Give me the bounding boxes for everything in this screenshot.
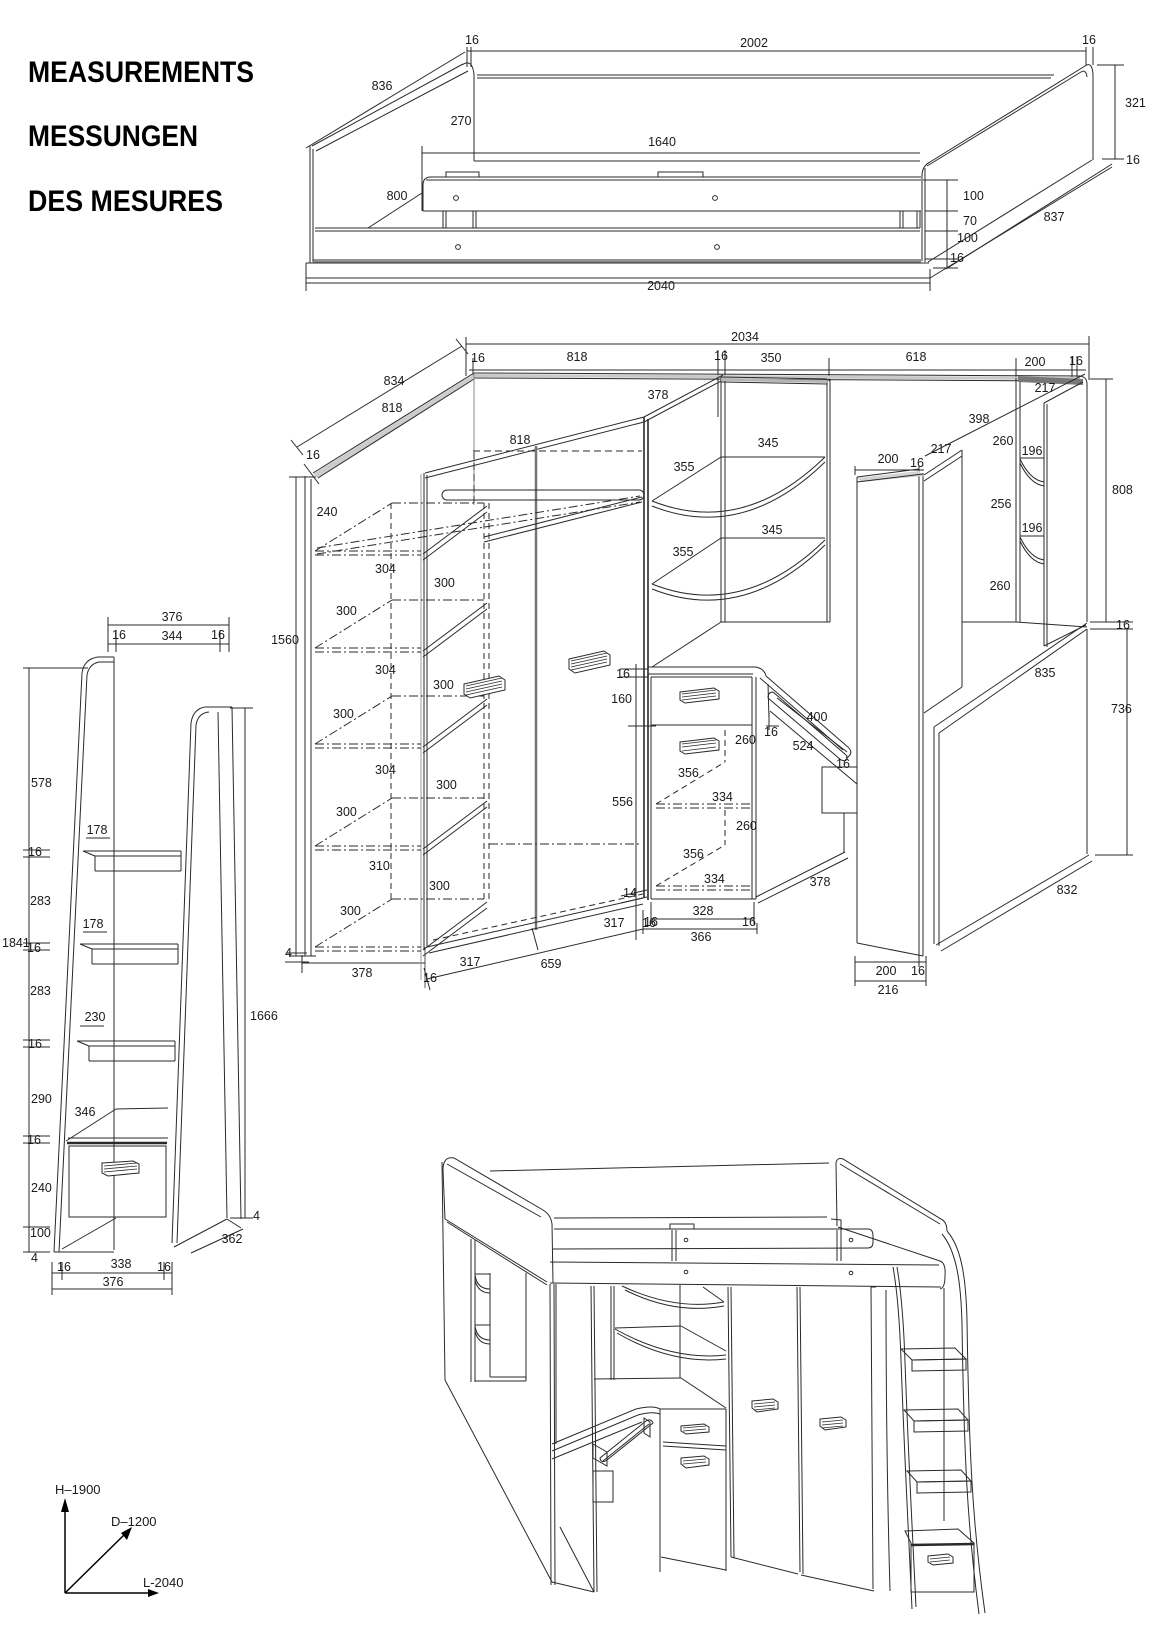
svg-text:2002: 2002 — [740, 36, 768, 50]
svg-text:16: 16 — [465, 33, 479, 47]
svg-text:378: 378 — [648, 388, 669, 402]
svg-text:304: 304 — [375, 763, 396, 777]
svg-text:304: 304 — [375, 663, 396, 677]
svg-text:317: 317 — [460, 955, 481, 969]
svg-text:217: 217 — [1035, 381, 1056, 395]
svg-text:MESSUNGEN: MESSUNGEN — [28, 120, 198, 153]
svg-text:260: 260 — [736, 819, 757, 833]
svg-text:D–1200: D–1200 — [111, 1514, 157, 1529]
svg-text:837: 837 — [1044, 210, 1065, 224]
svg-text:70: 70 — [963, 214, 977, 228]
svg-text:4: 4 — [31, 1251, 38, 1265]
svg-text:832: 832 — [1057, 883, 1078, 897]
svg-text:16: 16 — [1082, 33, 1096, 47]
svg-text:290: 290 — [31, 1092, 52, 1106]
svg-text:200: 200 — [1025, 355, 1046, 369]
svg-text:1666: 1666 — [250, 1009, 278, 1023]
svg-text:300: 300 — [429, 879, 450, 893]
svg-text:355: 355 — [673, 545, 694, 559]
svg-text:4: 4 — [253, 1209, 260, 1223]
svg-text:MEASUREMENTS: MEASUREMENTS — [28, 56, 254, 89]
svg-text:4: 4 — [285, 946, 292, 960]
svg-text:321: 321 — [1125, 96, 1146, 110]
svg-text:524: 524 — [793, 739, 814, 753]
svg-text:818: 818 — [567, 350, 588, 364]
svg-text:260: 260 — [990, 579, 1011, 593]
svg-text:200: 200 — [876, 964, 897, 978]
svg-text:334: 334 — [704, 872, 725, 886]
svg-text:300: 300 — [336, 805, 357, 819]
svg-text:16: 16 — [742, 915, 756, 929]
svg-text:304: 304 — [375, 562, 396, 576]
svg-text:300: 300 — [340, 904, 361, 918]
svg-text:618: 618 — [906, 350, 927, 364]
svg-text:16: 16 — [1116, 618, 1130, 632]
svg-text:260: 260 — [735, 733, 756, 747]
svg-text:376: 376 — [162, 610, 183, 624]
svg-text:1841: 1841 — [2, 936, 30, 950]
svg-text:16: 16 — [836, 757, 850, 771]
svg-text:355: 355 — [674, 460, 695, 474]
svg-text:200: 200 — [878, 452, 899, 466]
svg-text:300: 300 — [433, 678, 454, 692]
svg-text:16: 16 — [306, 448, 320, 462]
svg-text:659: 659 — [541, 957, 562, 971]
svg-text:344: 344 — [162, 629, 183, 643]
svg-text:398: 398 — [969, 412, 990, 426]
svg-text:334: 334 — [712, 790, 733, 804]
svg-text:300: 300 — [436, 778, 457, 792]
svg-text:100: 100 — [957, 231, 978, 245]
svg-text:16: 16 — [471, 351, 485, 365]
svg-text:578: 578 — [31, 776, 52, 790]
svg-text:366: 366 — [691, 930, 712, 944]
svg-text:16: 16 — [57, 1260, 71, 1274]
svg-text:310: 310 — [369, 859, 390, 873]
svg-text:DES MESURES: DES MESURES — [28, 185, 223, 218]
svg-text:378: 378 — [352, 966, 373, 980]
svg-text:160: 160 — [611, 692, 632, 706]
svg-text:376: 376 — [103, 1275, 124, 1289]
svg-text:328: 328 — [693, 904, 714, 918]
svg-text:835: 835 — [1035, 666, 1056, 680]
svg-text:1560: 1560 — [271, 633, 299, 647]
svg-text:240: 240 — [31, 1181, 52, 1195]
svg-text:818: 818 — [510, 433, 531, 447]
svg-text:16: 16 — [910, 456, 924, 470]
svg-text:338: 338 — [111, 1257, 132, 1271]
svg-text:556: 556 — [612, 795, 633, 809]
svg-text:345: 345 — [762, 523, 783, 537]
svg-text:16: 16 — [644, 915, 658, 929]
svg-text:300: 300 — [336, 604, 357, 618]
svg-text:283: 283 — [30, 894, 51, 908]
svg-text:16: 16 — [714, 349, 728, 363]
svg-text:16: 16 — [27, 1133, 41, 1147]
svg-text:356: 356 — [678, 766, 699, 780]
svg-text:16: 16 — [616, 667, 630, 681]
svg-text:400: 400 — [807, 710, 828, 724]
svg-text:H–1900: H–1900 — [55, 1482, 101, 1497]
svg-text:317: 317 — [604, 916, 625, 930]
svg-text:283: 283 — [30, 984, 51, 998]
svg-text:178: 178 — [87, 823, 108, 837]
svg-text:240: 240 — [317, 505, 338, 519]
svg-text:16: 16 — [28, 845, 42, 859]
svg-text:362: 362 — [222, 1232, 243, 1246]
svg-text:256: 256 — [991, 497, 1012, 511]
svg-text:1640: 1640 — [648, 135, 676, 149]
svg-text:16: 16 — [28, 1037, 42, 1051]
svg-text:2034: 2034 — [731, 330, 759, 344]
svg-text:16: 16 — [112, 628, 126, 642]
svg-text:L-2040: L-2040 — [143, 1575, 183, 1590]
svg-text:196: 196 — [1022, 521, 1043, 535]
svg-text:16: 16 — [764, 725, 778, 739]
svg-text:16: 16 — [911, 964, 925, 978]
svg-text:736: 736 — [1111, 702, 1132, 716]
svg-text:100: 100 — [963, 189, 984, 203]
svg-text:300: 300 — [333, 707, 354, 721]
svg-text:196: 196 — [1022, 444, 1043, 458]
svg-text:836: 836 — [372, 79, 393, 93]
svg-text:2040: 2040 — [647, 279, 675, 293]
svg-text:356: 356 — [683, 847, 704, 861]
svg-text:16: 16 — [157, 1260, 171, 1274]
svg-text:834: 834 — [384, 374, 405, 388]
svg-text:178: 178 — [83, 917, 104, 931]
svg-text:270: 270 — [451, 114, 472, 128]
svg-text:300: 300 — [434, 576, 455, 590]
svg-text:16: 16 — [211, 628, 225, 642]
svg-text:260: 260 — [993, 434, 1014, 448]
svg-text:16: 16 — [1069, 354, 1083, 368]
svg-text:800: 800 — [387, 189, 408, 203]
svg-text:216: 216 — [878, 983, 899, 997]
svg-text:14: 14 — [623, 886, 637, 900]
svg-text:100: 100 — [30, 1226, 51, 1240]
svg-text:350: 350 — [761, 351, 782, 365]
svg-text:808: 808 — [1112, 483, 1133, 497]
svg-text:378: 378 — [810, 875, 831, 889]
svg-text:346: 346 — [75, 1105, 96, 1119]
svg-text:16: 16 — [1126, 153, 1140, 167]
svg-text:818: 818 — [382, 401, 403, 415]
svg-text:230: 230 — [85, 1010, 106, 1024]
svg-text:345: 345 — [758, 436, 779, 450]
svg-text:16: 16 — [950, 251, 964, 265]
